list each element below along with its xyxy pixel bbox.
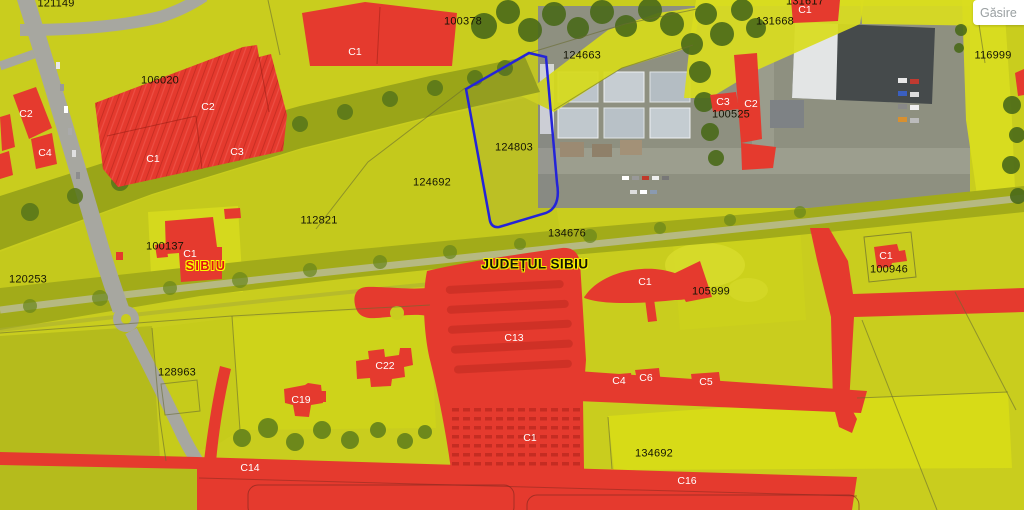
- city-label-sibiu: SIBIU: [186, 259, 227, 273]
- hatched-building-c1: [448, 406, 584, 468]
- map-base-layer: [0, 0, 1024, 510]
- map-viewport[interactable]: 1211491003781060201246631248031246921128…: [0, 0, 1024, 510]
- county-label: JUDEȚUL SIBIU: [482, 257, 589, 272]
- find-button[interactable]: Găsire: [973, 0, 1024, 25]
- find-button-label: Găsire: [980, 6, 1017, 20]
